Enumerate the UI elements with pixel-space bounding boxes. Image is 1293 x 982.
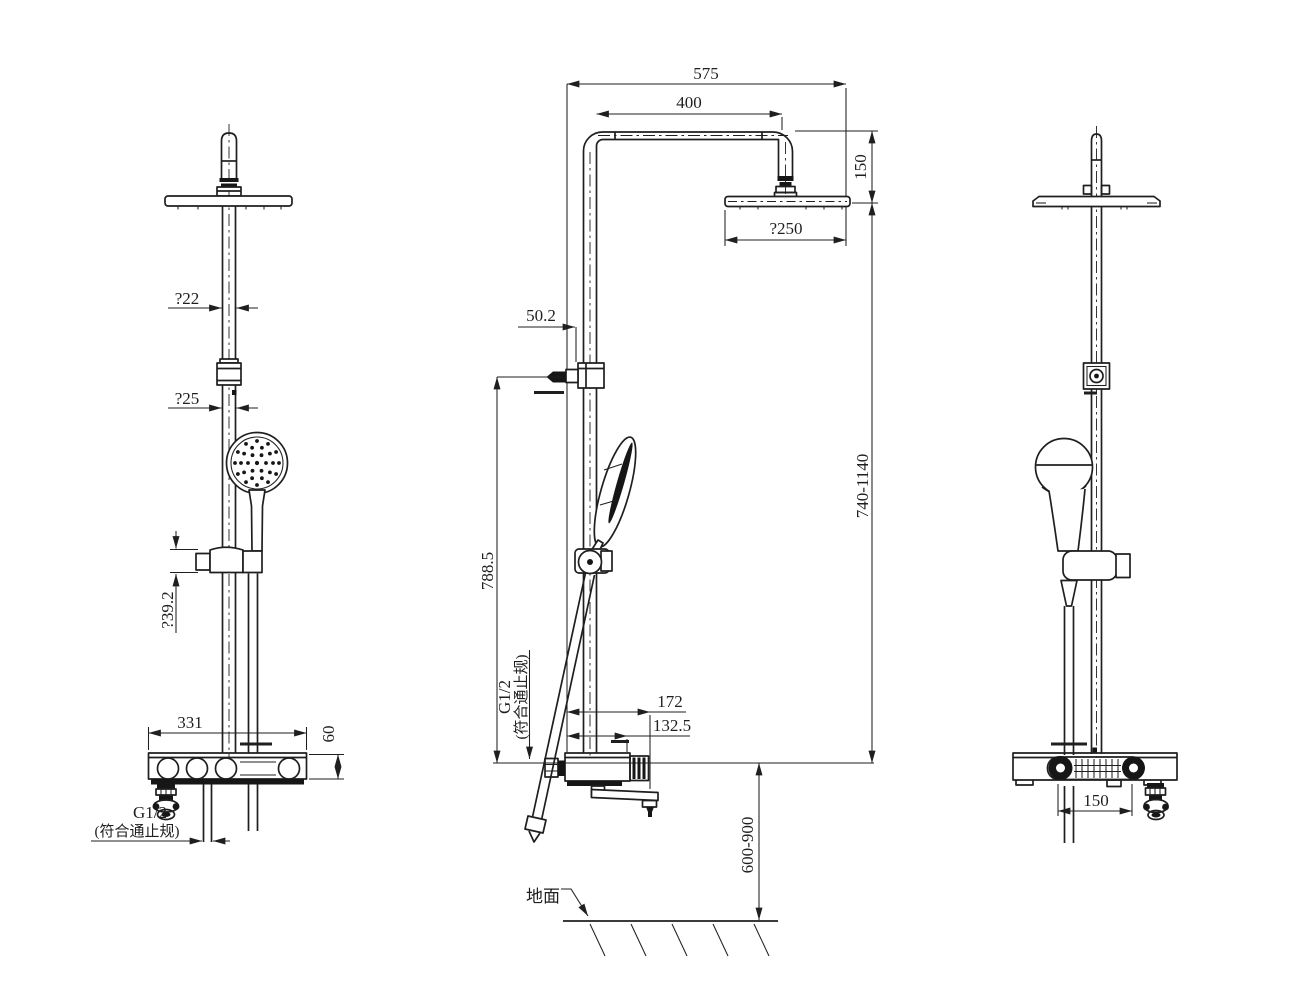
- thread-size-label: G1/2: [133, 803, 167, 822]
- dim-label-575: 575: [693, 64, 719, 83]
- dim-label-dia-22: ?22: [175, 289, 200, 308]
- center-view: 575 400 150 ?250 50.2: [478, 64, 878, 956]
- dim-offset-150-right: 150: [1058, 784, 1132, 816]
- thread-size-label: G1/2: [495, 680, 514, 714]
- label-ground: 地面: [526, 887, 560, 906]
- dim-label-400: 400: [676, 93, 702, 112]
- dim-label-dia-39-2: ?39.2: [158, 591, 177, 628]
- right-mixer-deck: [1013, 753, 1177, 787]
- dim-label-50-2: 50.2: [526, 306, 556, 325]
- thread-note-label: (符合通止规): [95, 823, 180, 840]
- right-hand-shower: [1036, 439, 1093, 552]
- dim-label-600-900: 600-900: [738, 817, 757, 874]
- dim-dia-25: ?25: [168, 389, 258, 408]
- left-slider-bracket: [196, 547, 262, 572]
- dim-label-331: 331: [177, 713, 203, 732]
- label-thread-g12-left: G1/2 (符合通止规): [91, 803, 230, 841]
- dim-label-150-right: 150: [1083, 791, 1109, 810]
- dim-label-60: 60: [319, 726, 338, 743]
- right-rain-shower-head: [1033, 197, 1160, 210]
- dim-label-150-drop: 150: [851, 154, 870, 180]
- dim-dia-22: ?22: [168, 289, 258, 308]
- center-tub-spout: [592, 786, 659, 817]
- center-rain-shower-head: [725, 197, 850, 210]
- left-shower-hose: [240, 574, 272, 754]
- center-shower-arm: [584, 132, 797, 753]
- dim-head-dia-250: ?250: [725, 210, 846, 246]
- thread-note-label: (符合通止规): [513, 655, 530, 740]
- dim-label-132-5: 132.5: [653, 716, 691, 735]
- dim-deck-width-331: 331: [149, 713, 307, 750]
- drawing-canvas: ?22 ?25: [0, 0, 1293, 982]
- center-hand-shower: [586, 433, 644, 556]
- ground-line: 地面: [526, 887, 778, 956]
- right-view: 150: [1013, 126, 1177, 843]
- left-mixer-deck: [149, 753, 307, 785]
- dim-dia-39-2: ?39.2: [158, 531, 198, 633]
- dim-height-600-900: 600-900: [738, 763, 759, 920]
- right-check-valve: [1143, 783, 1169, 820]
- dim-label-172: 172: [657, 692, 683, 711]
- dim-overall-575: 575: [567, 64, 846, 84]
- right-slider-bracket: [1061, 551, 1130, 606]
- dim-riser-740-1140: 740-1140: [853, 203, 872, 763]
- right-wall-bracket: [1084, 363, 1110, 393]
- dim-arm-400: 400: [597, 93, 783, 130]
- dim-body-132-5: 132.5: [567, 716, 691, 752]
- dim-label-788-5: 788.5: [478, 552, 497, 590]
- dim-label-740-1140: 740-1140: [853, 454, 872, 519]
- technical-drawing: ?22 ?25: [0, 0, 1293, 982]
- left-inlet-pipe: [204, 784, 258, 842]
- left-rain-shower-head: [165, 196, 292, 210]
- label-thread-g12-center: G1/2 (符合通止规): [495, 650, 530, 759]
- dim-drop-150: 150: [795, 131, 878, 203]
- center-wall-bracket: [534, 363, 604, 393]
- dim-label-dia-25: ?25: [175, 389, 200, 408]
- dim-label-dia-250: ?250: [769, 219, 802, 238]
- center-slider-bracket: [575, 549, 612, 574]
- dim-deck-height-60: 60: [309, 726, 344, 780]
- left-view: ?22 ?25: [91, 124, 344, 842]
